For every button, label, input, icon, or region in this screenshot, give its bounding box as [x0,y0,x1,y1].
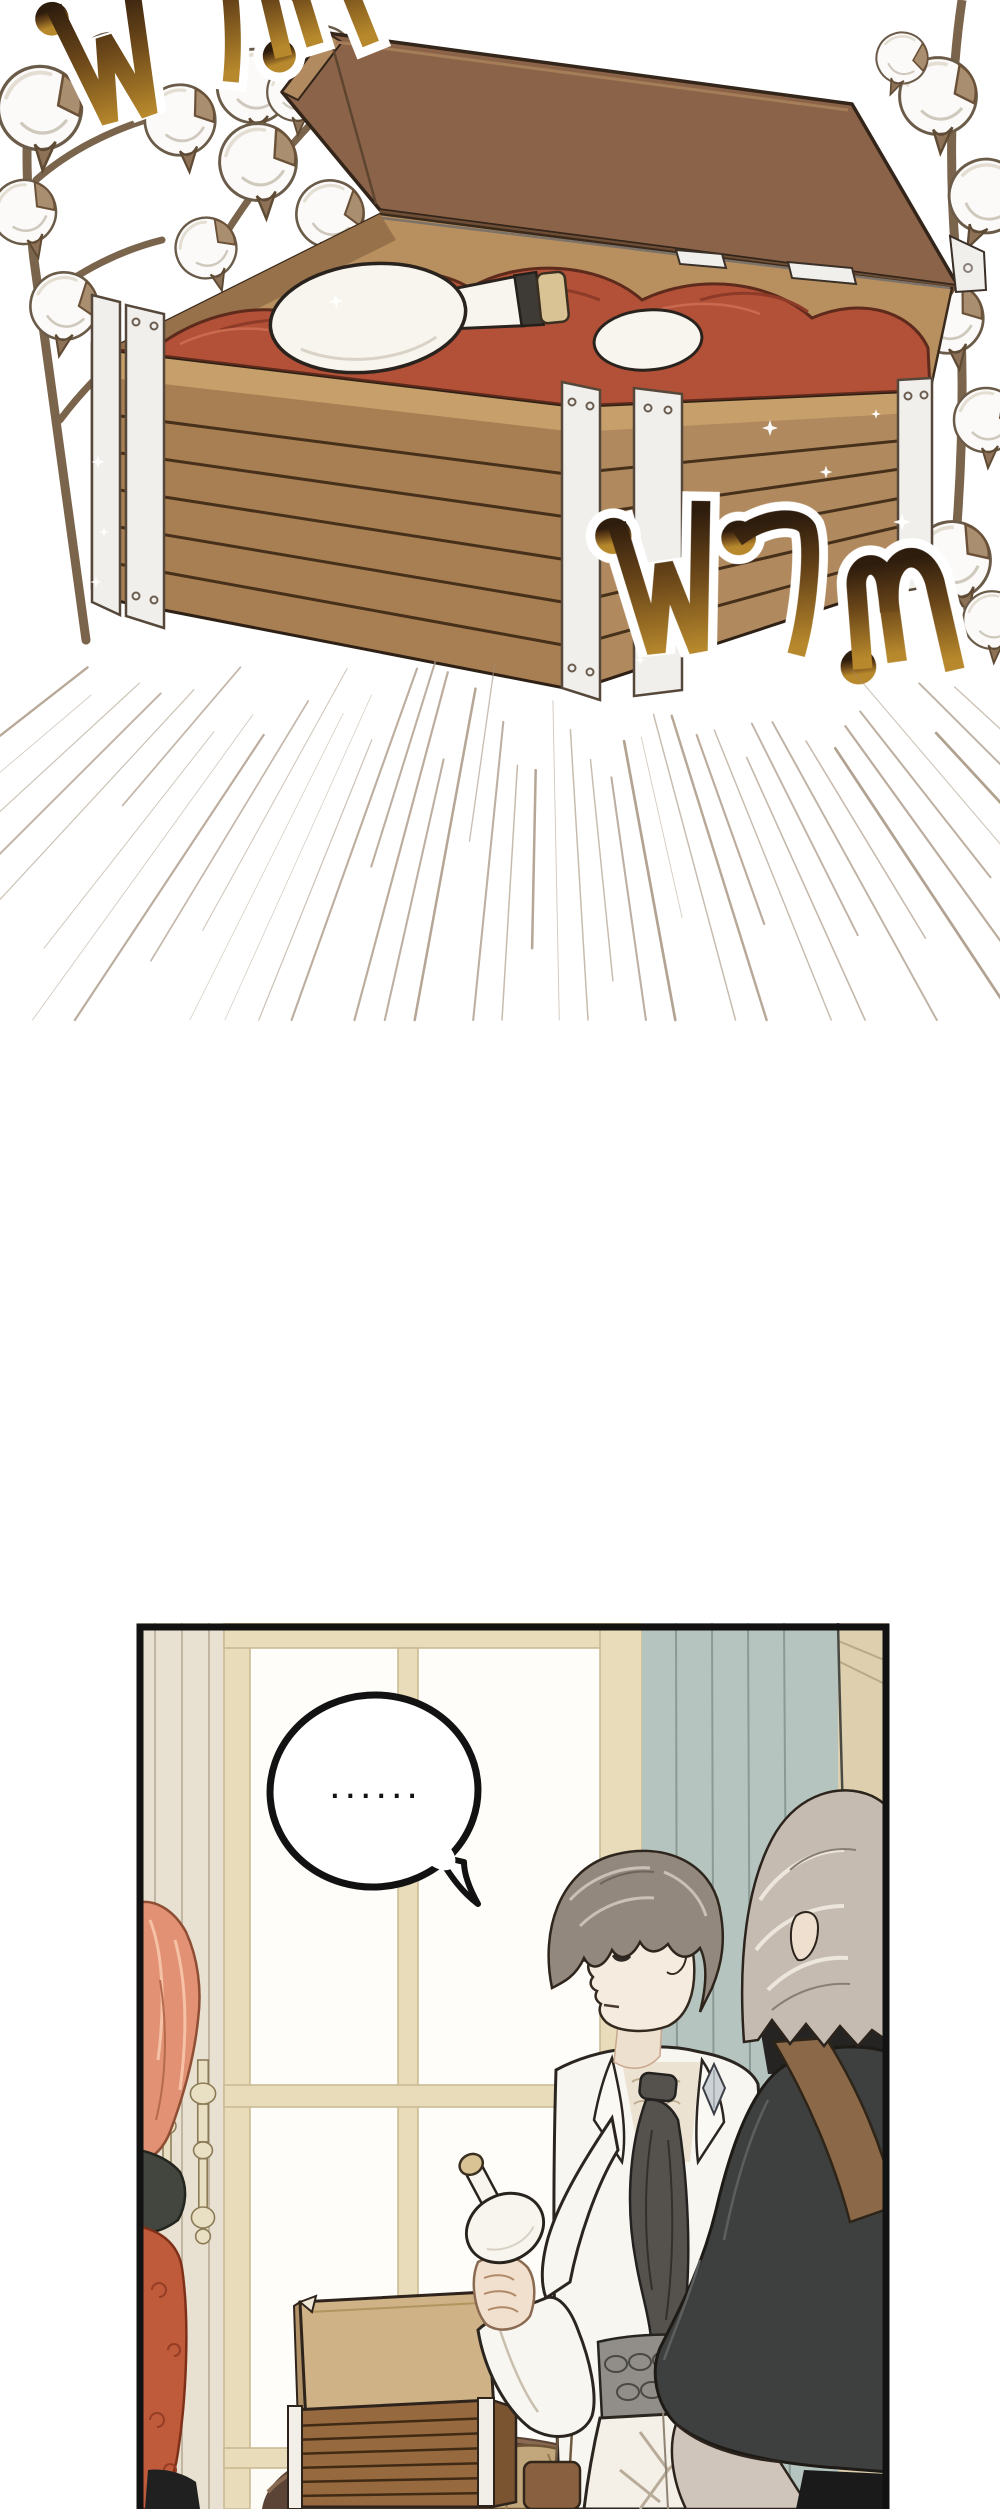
speed-line [0,695,91,854]
speed-line [75,735,264,1020]
hinge [676,250,726,268]
speed-line [853,671,1000,973]
speed-line [0,690,194,991]
crate-trim [478,2398,494,2506]
speed-lines [0,661,1000,1020]
speed-line [415,689,476,1020]
speed-line [591,760,613,981]
speed-line [714,730,831,1020]
speed-line [502,765,517,1020]
panel: ...... [137,1623,896,2509]
speed-line [292,669,417,1020]
speed-line [203,669,347,931]
window-stile [224,1623,250,2509]
speed-line [355,672,448,1020]
speed-line [259,740,372,1020]
speed-line [33,715,253,1020]
speed-line [0,683,140,978]
hand [474,2256,534,2330]
belt-pouch [524,2462,580,2509]
speed-line [611,777,646,1020]
speed-line [44,732,214,949]
speed-line [641,737,682,918]
speed-line [835,748,1000,1020]
speed-line [747,758,865,1021]
flask-cork [536,271,569,324]
speed-line [752,724,858,936]
speed-line [473,722,503,1020]
crate-trim [288,2406,302,2509]
speed-line [624,741,675,1020]
speed-line [919,683,1000,987]
speed-line [123,667,241,805]
speed-line [0,667,88,909]
black-trousers [796,2470,889,2509]
small-crate [288,2292,516,2509]
speed-line [553,701,559,1020]
speed-line [532,770,536,948]
speed-line [672,716,767,1020]
speed-line [570,730,588,1020]
bubble-dots-text: ...... [328,1776,421,1804]
speed-line [845,726,1000,1020]
comic-art: ...... [0,0,1000,2509]
speed-line [860,712,990,878]
speed-line [470,663,495,841]
comic-page: ...... [0,0,1000,2509]
